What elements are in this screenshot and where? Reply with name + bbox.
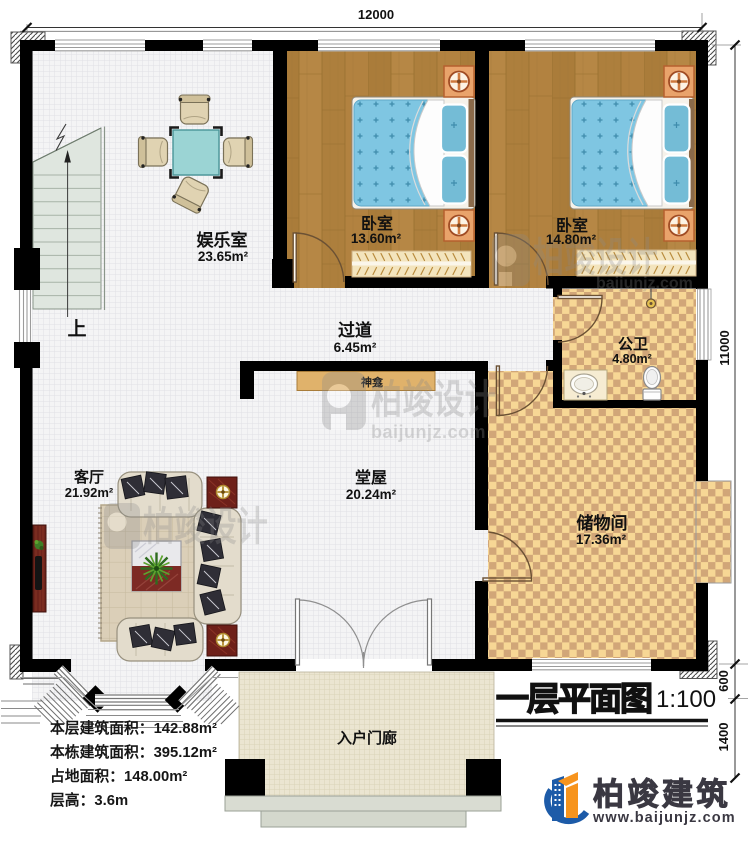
svg-text:柏竣设计: 柏竣设计 (371, 377, 496, 422)
svg-text:4.80m²: 4.80m² (612, 352, 652, 366)
svg-text:公卫: 公卫 (618, 336, 648, 353)
svg-text:6.45m²: 6.45m² (334, 340, 377, 355)
svg-text:客厅: 客厅 (73, 468, 104, 486)
svg-text:1400: 1400 (716, 723, 731, 752)
svg-text:21.92m²: 21.92m² (65, 485, 114, 500)
svg-text:层高：3.6m: 层高：3.6m (50, 791, 128, 809)
svg-text:入户门廊: 入户门廊 (337, 729, 397, 747)
svg-text:www.baijunjz.com: www.baijunjz.com (592, 810, 736, 826)
svg-text:柏竣建筑: 柏竣建筑 (593, 777, 731, 812)
svg-text:baijunjz.com: baijunjz.com (371, 422, 486, 442)
svg-text:娱乐室: 娱乐室 (197, 230, 248, 250)
svg-text:本栋建筑面积：395.12m²: 本栋建筑面积：395.12m² (50, 743, 217, 761)
svg-text:13.60m²: 13.60m² (351, 231, 402, 246)
svg-text:储物间: 储物间 (577, 513, 628, 533)
svg-text:600: 600 (716, 670, 731, 692)
svg-text:17.36m²: 17.36m² (576, 532, 627, 547)
svg-text:柏竣设计: 柏竣设计 (143, 504, 268, 549)
svg-text:baijunjz.com: baijunjz.com (596, 275, 693, 292)
svg-text:过道: 过道 (338, 320, 372, 340)
svg-text:12000: 12000 (358, 7, 394, 22)
svg-text:11000: 11000 (717, 330, 732, 365)
svg-text:本层建筑面积：142.88m²: 本层建筑面积：142.88m² (50, 719, 217, 737)
svg-text:堂屋: 堂屋 (355, 468, 387, 487)
svg-text:1:100: 1:100 (656, 686, 716, 713)
svg-text:一层平面图: 一层平面图 (496, 680, 651, 717)
svg-text:20.24m²: 20.24m² (346, 487, 397, 502)
svg-text:23.65m²: 23.65m² (198, 249, 249, 264)
svg-text:占地面积：148.00m²: 占地面积：148.00m² (50, 767, 187, 785)
svg-text:上: 上 (67, 318, 86, 340)
svg-text:14.80m²: 14.80m² (546, 232, 597, 247)
